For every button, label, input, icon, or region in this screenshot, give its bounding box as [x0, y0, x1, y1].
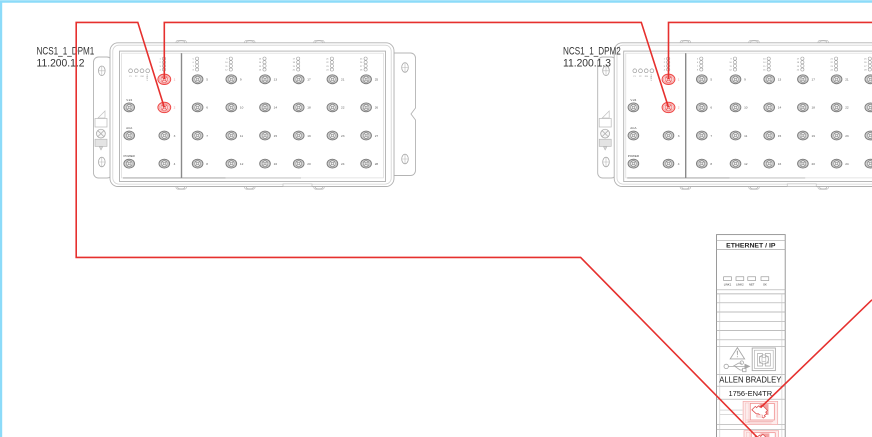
svg-text:11.200.1.3: 11.200.1.3 — [563, 58, 611, 70]
svg-text:10: 10 — [744, 106, 748, 110]
svg-text:POWER: POWER — [628, 154, 640, 158]
svg-text:4: 4 — [174, 162, 176, 166]
svg-text:19: 19 — [812, 134, 816, 138]
svg-text:9: 9 — [240, 78, 242, 82]
svg-text:25: 25 — [375, 78, 379, 82]
svg-text:NCS1_1_DPM1: NCS1_1_DPM1 — [37, 45, 95, 57]
svg-text:RM: RM — [645, 76, 648, 78]
svg-text:22: 22 — [845, 106, 849, 110]
svg-text:1756-EN4TR: 1756-EN4TR — [728, 389, 772, 398]
svg-text:23: 23 — [341, 134, 345, 138]
svg-text:14: 14 — [274, 106, 278, 110]
svg-text:3: 3 — [174, 134, 176, 138]
svg-text:6: 6 — [206, 106, 208, 110]
svg-text:1: 1 — [678, 78, 680, 82]
svg-text:16: 16 — [778, 162, 782, 166]
svg-text:11.200.1.2: 11.200.1.2 — [37, 58, 85, 70]
svg-text:9: 9 — [744, 78, 746, 82]
svg-text:V.24: V.24 — [630, 98, 636, 102]
svg-text:15: 15 — [778, 134, 782, 138]
svg-text:1: 1 — [174, 78, 176, 82]
svg-text:OK: OK — [763, 282, 767, 286]
svg-text:11: 11 — [744, 134, 747, 138]
svg-text:28: 28 — [375, 162, 379, 166]
svg-text:LINK1: LINK1 — [724, 282, 732, 286]
svg-text:V.24: V.24 — [126, 98, 132, 102]
svg-text:11: 11 — [240, 134, 243, 138]
svg-text:17: 17 — [307, 78, 311, 82]
svg-text:NET: NET — [749, 282, 755, 286]
svg-text:2: 2 — [678, 106, 680, 110]
svg-text:26: 26 — [375, 106, 379, 110]
svg-text:18: 18 — [307, 106, 311, 110]
svg-text:FAULT: FAULT — [145, 75, 148, 82]
svg-text:13: 13 — [274, 78, 278, 82]
svg-text:NCS1_1_DPM2: NCS1_1_DPM2 — [563, 45, 621, 57]
svg-text:12: 12 — [240, 162, 244, 166]
svg-text:2: 2 — [174, 106, 176, 110]
svg-text:8: 8 — [206, 162, 208, 166]
svg-text:10: 10 — [240, 106, 244, 110]
svg-text:ALLEN BRADLEY: ALLEN BRADLEY — [719, 376, 782, 385]
svg-text:23: 23 — [845, 134, 849, 138]
svg-text:14: 14 — [778, 106, 782, 110]
svg-text:15: 15 — [274, 134, 278, 138]
svg-text:22: 22 — [341, 106, 345, 110]
svg-text:4: 4 — [678, 162, 680, 166]
svg-text:27: 27 — [375, 134, 379, 138]
svg-text:24: 24 — [845, 162, 849, 166]
svg-text:7: 7 — [710, 134, 712, 138]
svg-text:3: 3 — [678, 134, 680, 138]
svg-text:21: 21 — [341, 78, 345, 82]
svg-text:ETHERNET / IP: ETHERNET / IP — [726, 243, 776, 250]
svg-text:8: 8 — [710, 162, 712, 166]
svg-text:ACA: ACA — [630, 126, 636, 130]
svg-text:ACA: ACA — [126, 126, 132, 130]
svg-text:21: 21 — [845, 78, 849, 82]
svg-text:20: 20 — [307, 162, 311, 166]
svg-text:7: 7 — [206, 134, 208, 138]
svg-text:20: 20 — [812, 162, 816, 166]
svg-text:17: 17 — [812, 78, 816, 82]
svg-text:5: 5 — [206, 78, 208, 82]
svg-text:12: 12 — [744, 162, 748, 166]
svg-text:16: 16 — [274, 162, 278, 166]
svg-text:LINK2: LINK2 — [736, 282, 744, 286]
svg-text:24: 24 — [341, 162, 345, 166]
svg-text:POWER: POWER — [124, 154, 136, 158]
svg-text:18: 18 — [812, 106, 816, 110]
svg-text:6: 6 — [710, 106, 712, 110]
svg-text:FAULT: FAULT — [650, 75, 653, 82]
svg-text:13: 13 — [778, 78, 782, 82]
svg-text:5: 5 — [710, 78, 712, 82]
svg-text:19: 19 — [307, 134, 311, 138]
svg-text:RM: RM — [141, 76, 144, 78]
